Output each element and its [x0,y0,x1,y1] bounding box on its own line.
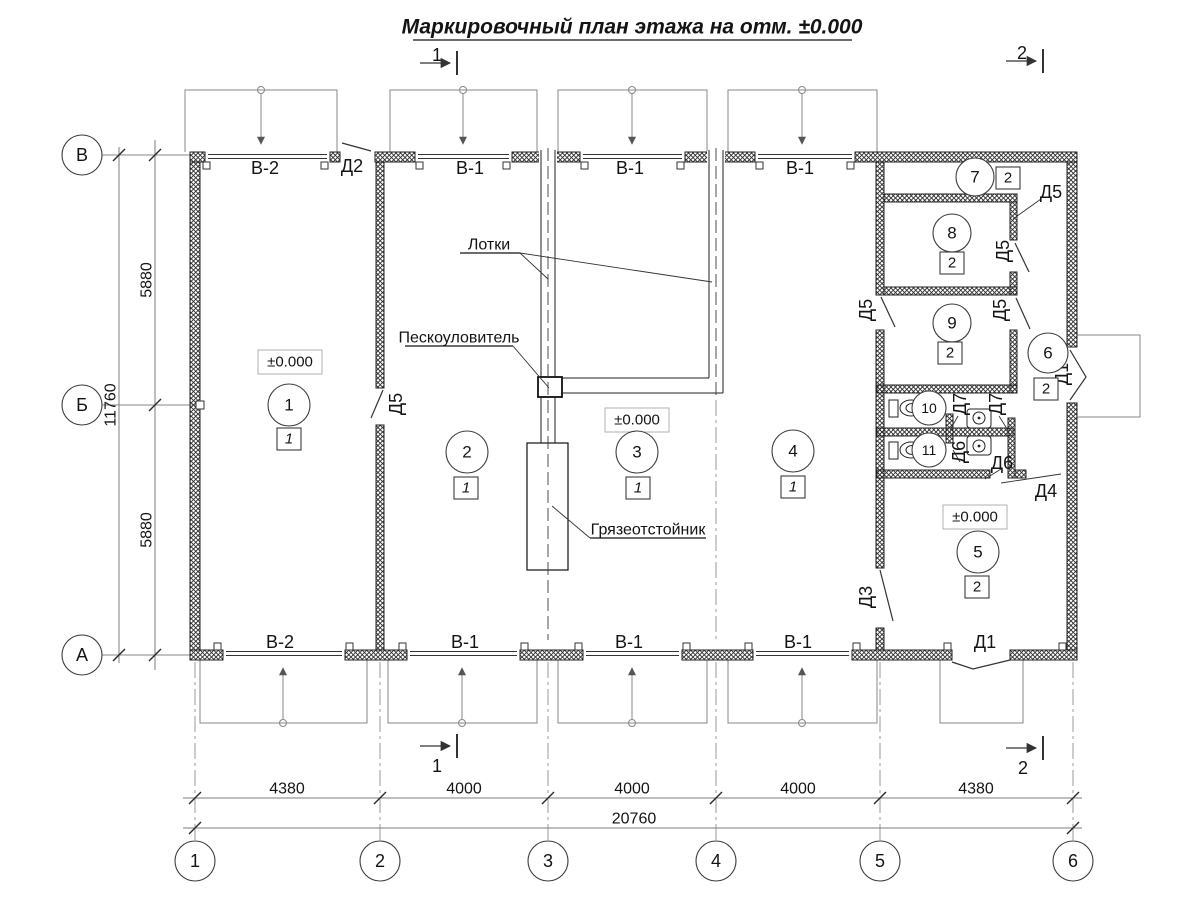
room-8-category: 2 [948,255,956,272]
floor-plan-drawing: Маркировочный план этажа на отм. ±0.000 … [0,0,1200,900]
dim-bottom-1: 4380 [269,781,305,798]
dim-bottom-total: 20760 [612,811,657,828]
elevation-room5: ±0.000 [952,509,998,526]
elevation-room3: ±0.000 [614,412,660,429]
section-2-label: 2 [1017,43,1027,63]
door-label-d5-room9: Д5 [990,299,1010,321]
room-5-category: 2 [973,579,981,596]
right-exterior-wall-lower [1067,403,1077,650]
room-3-number: 3 [632,443,641,462]
door-label-d5-room7: Д5 [1040,182,1062,202]
mud-trap-label: Грязеотстойник [591,522,707,539]
door-label-d2: Д2 [341,156,363,176]
axis-row-v: В [76,145,88,165]
gate-label-bottom-1: В-2 [266,632,294,652]
room-9-category: 2 [946,345,954,362]
dim-left-total: 11760 [103,383,120,426]
room-4-number: 4 [788,442,797,461]
elevation-room1: ±0.000 [267,354,313,371]
room-1-category: 1 [285,431,293,448]
door-d5-room9-leaf [1016,298,1030,329]
dim-bottom-5: 4380 [958,781,994,798]
dim-left-bottom: 5880 [139,512,156,548]
door-d1-bottom-leaf [952,660,1010,669]
room-10-number: 10 [921,400,937,416]
gate-label-bottom-4: В-1 [784,632,812,652]
axis-b-wall-marker [196,401,204,409]
section-mark-2-top: 2 [1006,43,1043,73]
door-label-d5-room8: Д5 [993,240,1013,262]
washbasin-lower [967,436,991,455]
door-d5-room1-leaf [371,390,383,418]
grid-lines [102,155,1073,841]
section-1-label: 1 [432,45,442,65]
axis-col-5: 5 [875,851,885,871]
floor-plan-sheet: Маркировочный план этажа на отм. ±0.000 … [0,0,1200,900]
mud-trap-box [527,443,568,570]
dim-bottom-3: 4000 [614,781,650,798]
door-d3-leaf [880,570,893,621]
door-d1-right-leaf [1070,350,1086,400]
entrance-porch-bottom [940,660,1023,723]
dim-bottom-2: 4000 [446,781,482,798]
entrance-porch-right [1077,335,1140,417]
right-exterior-wall-upper [1067,162,1077,347]
door-label-d6-lower: Д6 [991,453,1013,473]
dim-bottom-4: 4000 [780,781,816,798]
door-d5-room8-leaf [1015,243,1029,272]
section-mark-2-bottom: 2 [1006,736,1043,778]
door-label-d4: Д4 [1035,481,1057,501]
room-3-category: 1 [634,480,642,497]
room-2-number: 2 [462,443,471,462]
section-mark-1-top: 1 [420,45,457,75]
room-2-category: 1 [462,480,470,497]
axis-col-4: 4 [711,851,721,871]
title-block: Маркировочный план этажа на отм. ±0.000 [402,16,863,41]
door-label-d1-bottom: Д1 [974,632,996,652]
axis-row-b: Б [76,395,88,415]
axis-col-3: 3 [543,851,553,871]
room-7-category: 2 [1004,170,1012,187]
gate-label-top-3: В-1 [616,158,644,178]
section-mark-1-bottom: 1 [420,734,457,776]
dim-left-top: 5880 [139,262,156,298]
axis-col-6: 6 [1068,851,1078,871]
room-6-category: 2 [1042,381,1050,398]
trays-label: Лотки [468,237,510,254]
sand-trap-label: Пескоуловитель [399,330,520,347]
room-9-number: 9 [947,314,956,333]
room-1-number: 1 [284,396,293,415]
door-label-d7-left: Д7 [950,393,970,415]
door-label-d5-room4: Д5 [856,299,876,321]
door-label-d6-upper: Д6 [949,441,969,463]
loading-ramps-top [185,87,877,153]
room-8-number: 8 [947,224,956,243]
room-6-number: 6 [1043,344,1052,363]
gate-label-bottom-2: В-1 [451,632,479,652]
section-1-label-bottom: 1 [432,756,442,776]
drainage-system [527,148,725,640]
door-label-d5-room1: Д5 [386,393,406,415]
room-5-number: 5 [973,543,982,562]
door-d5-room4-leaf [881,297,895,327]
room-7-number: 7 [970,168,979,187]
door-label-d3: Д3 [856,586,876,608]
gate-label-top-2: В-1 [456,158,484,178]
drawing-title: Маркировочный план этажа на отм. ±0.000 [402,16,863,39]
gate-label-top-4: В-1 [786,158,814,178]
axis-col-1: 1 [190,851,200,871]
section-2-label-bottom: 2 [1018,758,1028,778]
room-4-category: 1 [789,479,797,496]
gate-label-bottom-3: В-1 [615,632,643,652]
gate-label-top-1: В-2 [251,158,279,178]
door-label-d7-right: Д7 [986,393,1006,415]
axis-row-a: А [76,645,88,665]
dimensions-bottom: 4380 4000 4000 4000 4380 20760 [183,781,1082,835]
door-d2-leaf [342,143,371,151]
axis-col-2: 2 [375,851,385,871]
room-11-number: 11 [922,442,937,458]
